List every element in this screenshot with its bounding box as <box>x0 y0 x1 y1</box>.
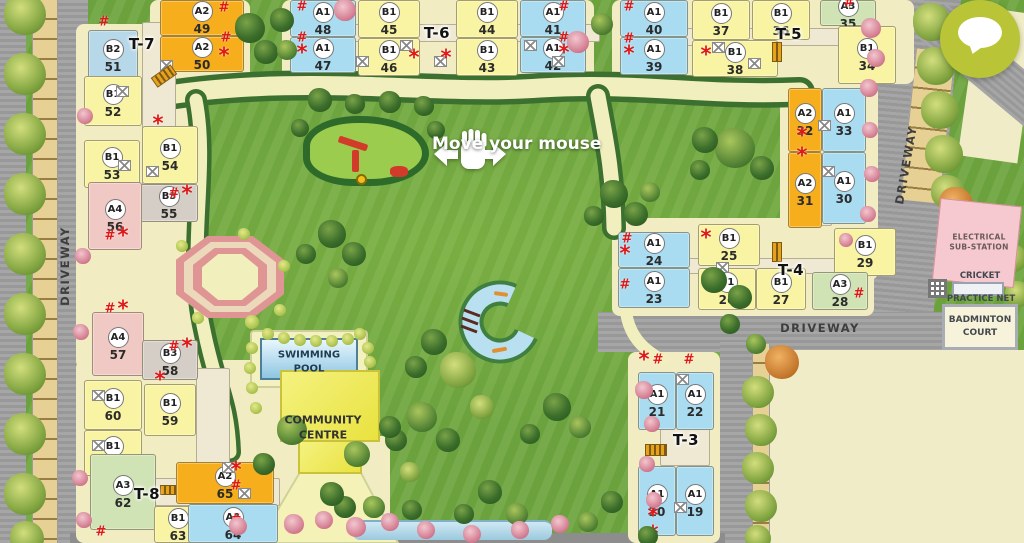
road-labels-layer: DRIVEWAYDRIVEWAYDRIVEWAY <box>0 0 1024 543</box>
driveway-label-2: DRIVEWAY <box>780 321 860 335</box>
driveway-label-1: DRIVEWAY <box>892 125 920 206</box>
driveway-label-0: DRIVEWAY <box>58 226 72 306</box>
pan-hint-text: Move your mouse <box>432 134 601 154</box>
chat-button[interactable] <box>940 0 1020 78</box>
site-masterplan: B251A249A250B152B153B154B355A456A457B358… <box>0 0 1024 543</box>
pan-hint: Move your mouse <box>432 128 592 223</box>
